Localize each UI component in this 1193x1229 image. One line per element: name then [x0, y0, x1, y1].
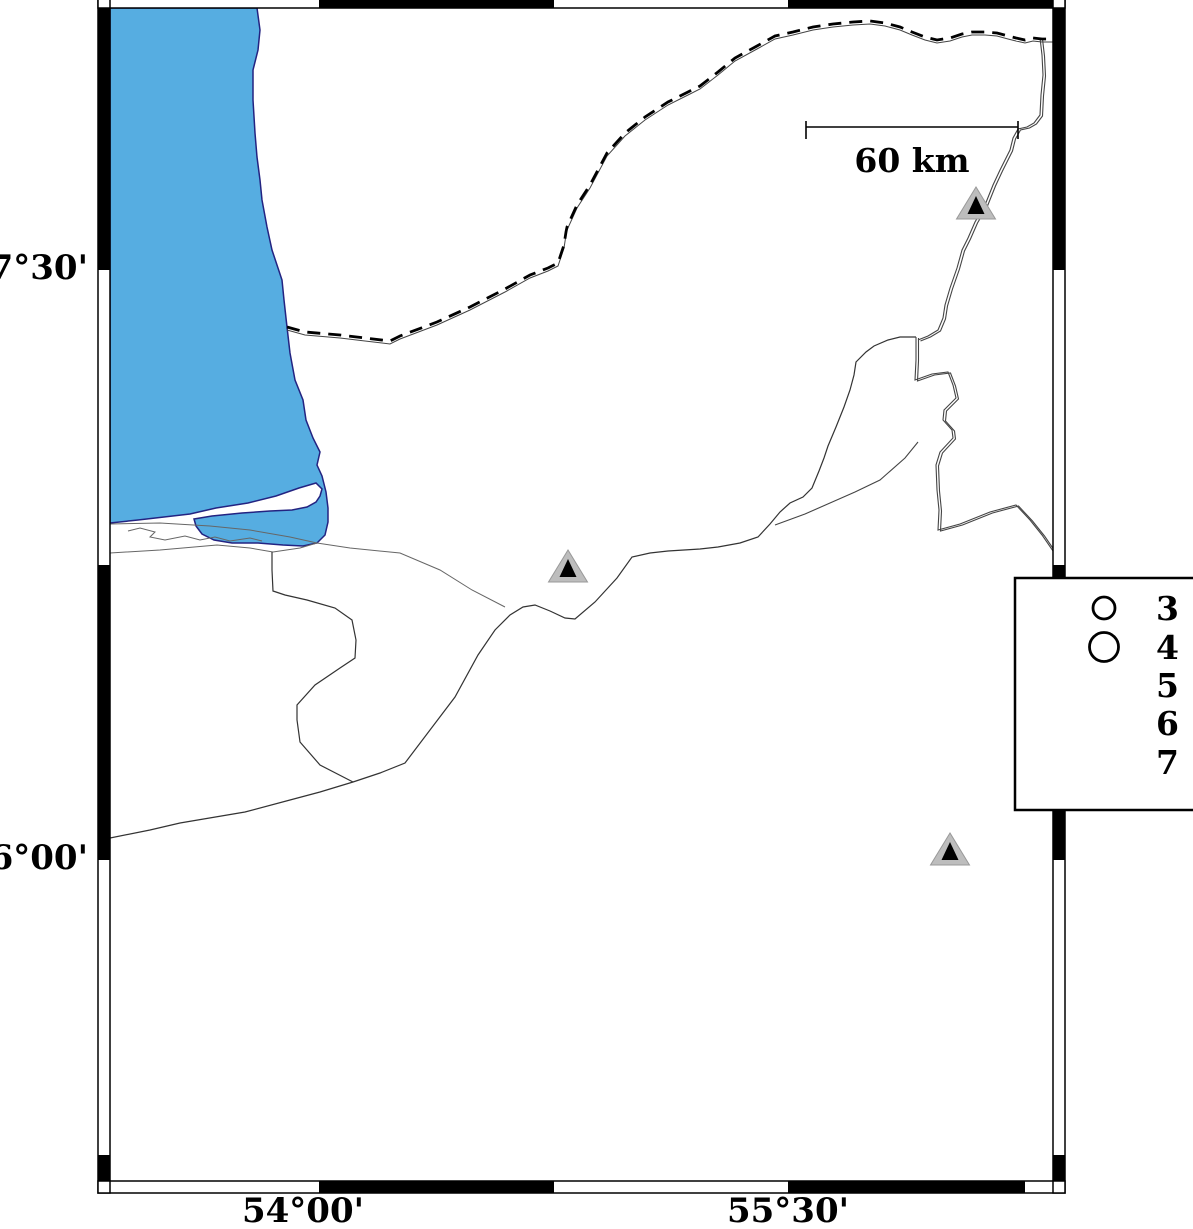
legend-entry-label: 4 [1156, 628, 1179, 667]
frame-tick-segment [98, 8, 110, 270]
lat-label-37-30: 37°30' [0, 248, 88, 288]
frame-tick-segment [98, 565, 110, 860]
legend-entry-label: 7 [1156, 743, 1179, 782]
map-svg: 60 km 3 4 5 6 7 37°30' 36°00' 54°00' 55°… [0, 0, 1193, 1229]
frame-tick-segment [788, 0, 1053, 8]
legend-entry-label: 3 [1156, 589, 1179, 628]
legend-entry-label: 5 [1156, 666, 1179, 705]
scale-bar-label: 60 km [854, 141, 969, 180]
lat-label-36-00: 36°00' [0, 838, 88, 878]
corner-square [98, 0, 110, 8]
legend-entry-label: 6 [1156, 704, 1179, 743]
frame-tick-segment [98, 1155, 110, 1181]
frame-tick-segment [1053, 1155, 1065, 1181]
map-canvas [110, 8, 1056, 1181]
corner-square [1053, 0, 1065, 8]
frame-tick-segment [1053, 8, 1065, 270]
corner-square [98, 1181, 110, 1193]
frame-tick-segment [319, 0, 554, 8]
corner-square [1053, 1181, 1065, 1193]
lon-label-55-30: 55°30' [727, 1191, 849, 1229]
lon-label-54-00: 54°00' [242, 1191, 364, 1229]
legend-box: 3 4 5 6 7 [1015, 578, 1193, 810]
map-figure: 60 km 3 4 5 6 7 37°30' 36°00' 54°00' 55°… [0, 0, 1193, 1229]
